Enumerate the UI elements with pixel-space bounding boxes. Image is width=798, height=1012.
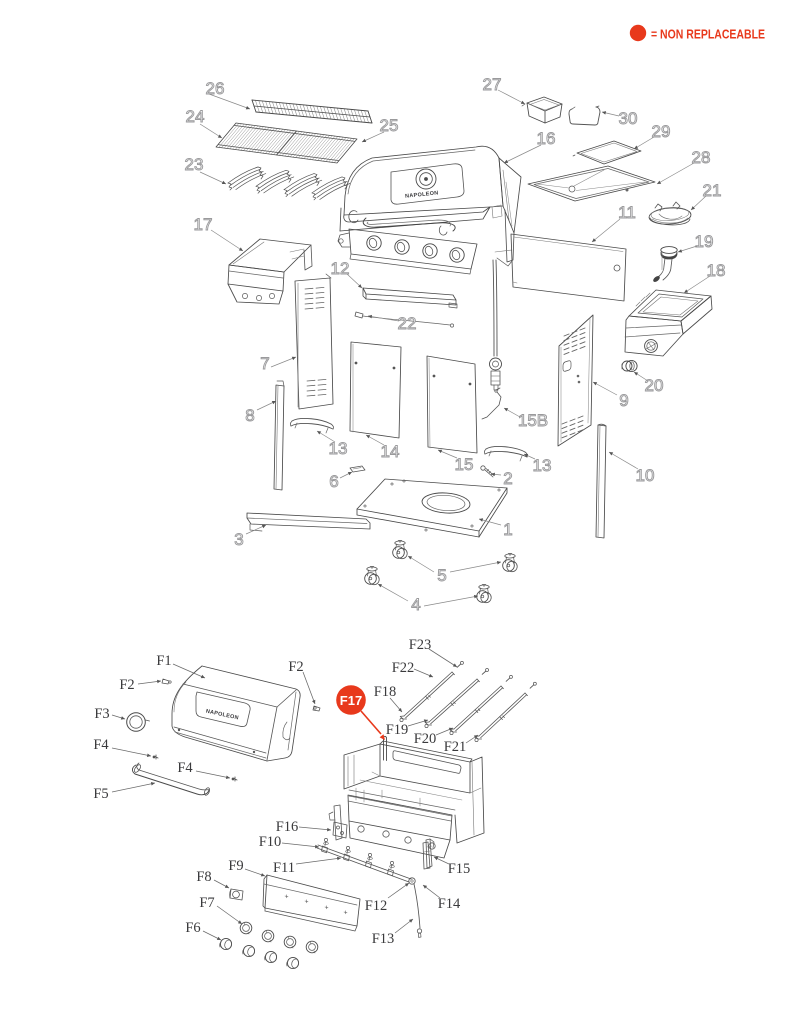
svg-text:12: 12	[331, 259, 350, 278]
svg-text:11: 11	[618, 203, 636, 222]
svg-text:8: 8	[245, 406, 254, 425]
svg-text:F2: F2	[119, 677, 134, 693]
svg-text:F3: F3	[94, 706, 109, 722]
svg-text:= NON REPLACEABLE: = NON REPLACEABLE	[651, 27, 765, 42]
svg-text:15B: 15B	[518, 411, 548, 430]
svg-text:23: 23	[185, 155, 204, 174]
svg-text:1: 1	[503, 520, 512, 539]
svg-text:16: 16	[537, 129, 556, 148]
svg-text:21: 21	[703, 181, 722, 200]
svg-text:26: 26	[206, 79, 225, 98]
svg-text:29: 29	[652, 122, 671, 141]
svg-text:15: 15	[455, 455, 474, 474]
svg-text:F22: F22	[392, 660, 415, 676]
svg-text:F19: F19	[386, 722, 409, 738]
svg-text:F16: F16	[276, 819, 299, 835]
svg-text:7: 7	[260, 354, 269, 373]
svg-text:F23: F23	[409, 637, 432, 653]
svg-text:F13: F13	[372, 931, 395, 947]
svg-text:20: 20	[645, 376, 664, 395]
svg-text:5: 5	[437, 566, 446, 585]
svg-text:F18: F18	[374, 684, 397, 700]
svg-text:28: 28	[692, 148, 711, 167]
svg-text:18: 18	[707, 261, 726, 280]
svg-text:6: 6	[329, 472, 338, 491]
svg-text:3: 3	[234, 530, 243, 549]
svg-text:F9: F9	[228, 858, 243, 874]
svg-text:F2: F2	[288, 659, 303, 675]
svg-text:F5: F5	[93, 786, 108, 802]
svg-text:27: 27	[483, 75, 502, 94]
svg-text:25: 25	[380, 116, 399, 135]
svg-text:19: 19	[695, 232, 714, 251]
svg-text:F1: F1	[156, 653, 171, 669]
svg-text:F11: F11	[273, 860, 295, 876]
svg-text:4: 4	[411, 595, 420, 614]
svg-text:F20: F20	[414, 731, 437, 747]
svg-text:F10: F10	[259, 834, 282, 850]
svg-text:10: 10	[636, 466, 655, 485]
svg-text:13: 13	[533, 456, 552, 475]
svg-text:F17: F17	[340, 693, 362, 708]
svg-text:F14: F14	[438, 896, 461, 912]
svg-text:F8: F8	[196, 869, 211, 885]
svg-text:F21: F21	[444, 739, 467, 755]
svg-text:30: 30	[619, 109, 638, 128]
svg-text:2: 2	[503, 469, 512, 488]
svg-text:22: 22	[398, 314, 417, 333]
svg-text:F15: F15	[448, 861, 471, 877]
svg-text:F4: F4	[177, 760, 193, 776]
svg-text:F7: F7	[199, 895, 214, 911]
svg-text:9: 9	[619, 391, 628, 410]
svg-text:24: 24	[186, 107, 205, 126]
svg-text:F12: F12	[365, 898, 388, 914]
svg-text:17: 17	[194, 215, 213, 234]
svg-text:13: 13	[329, 439, 348, 458]
svg-text:F6: F6	[185, 920, 200, 936]
svg-text:F4: F4	[93, 737, 109, 753]
